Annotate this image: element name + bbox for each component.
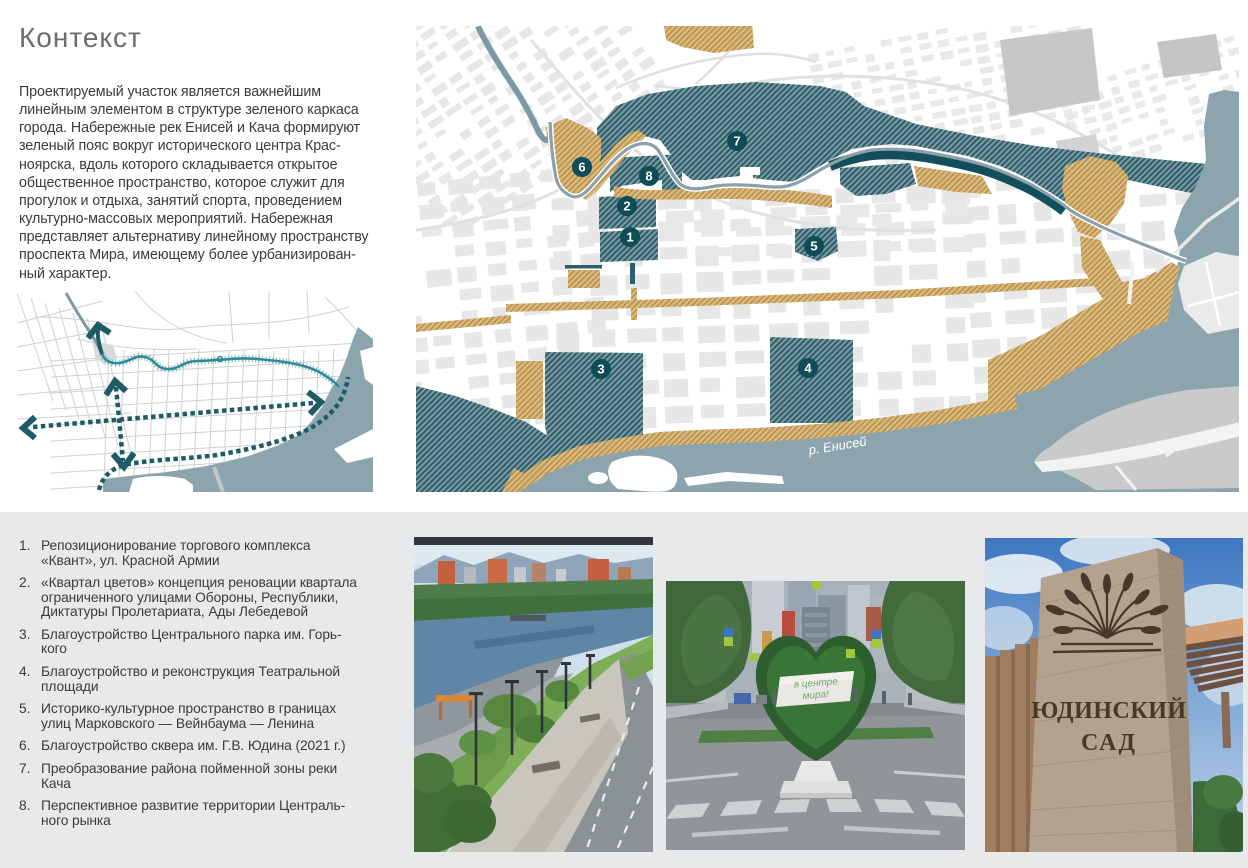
svg-text:1: 1 bbox=[626, 230, 633, 245]
svg-text:3: 3 bbox=[597, 362, 604, 377]
svg-text:4: 4 bbox=[804, 361, 812, 376]
svg-text:2: 2 bbox=[623, 199, 630, 214]
svg-text:6: 6 bbox=[578, 160, 585, 175]
svg-text:8: 8 bbox=[645, 169, 652, 184]
svg-text:5: 5 bbox=[810, 239, 817, 254]
svg-text:ЮДИНСКИЙ: ЮДИНСКИЙ bbox=[1031, 698, 1186, 724]
svg-text:7: 7 bbox=[733, 134, 740, 149]
svg-text:мира!: мира! bbox=[802, 689, 829, 702]
svg-text:САД: САД bbox=[1081, 730, 1137, 756]
